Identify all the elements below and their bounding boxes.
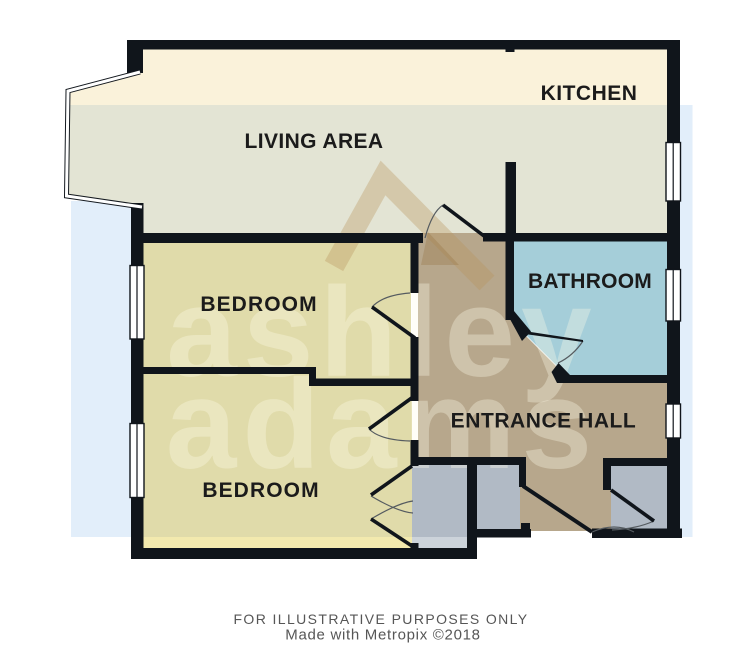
svg-text:Made with Metropix ©2018: Made with Metropix ©2018: [285, 627, 480, 644]
svg-text:ENTRANCE HALL: ENTRANCE HALL: [451, 410, 637, 433]
svg-text:BATHROOM: BATHROOM: [528, 270, 652, 293]
svg-text:LIVING AREA: LIVING AREA: [245, 130, 384, 153]
svg-text:KITCHEN: KITCHEN: [541, 82, 638, 105]
svg-text:BEDROOM: BEDROOM: [200, 293, 317, 316]
svg-text:FOR ILLUSTRATIVE PURPOSES ONLY: FOR ILLUSTRATIVE PURPOSES ONLY: [233, 611, 528, 627]
svg-text:BEDROOM: BEDROOM: [202, 479, 319, 502]
